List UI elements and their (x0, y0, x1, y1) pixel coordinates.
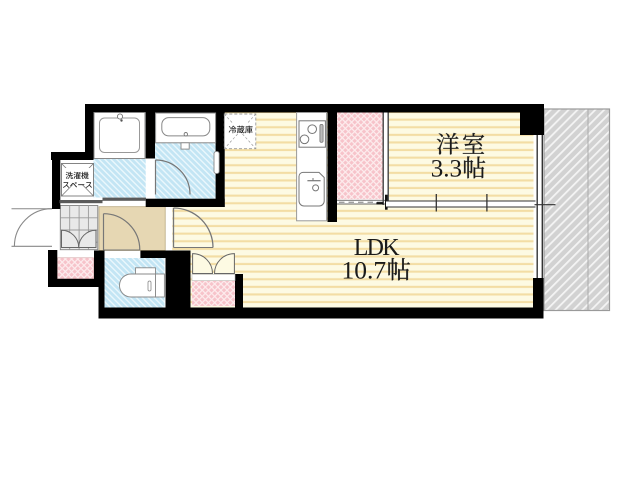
svg-text:3.3: 3.3 (431, 155, 462, 182)
svg-text:10.7: 10.7 (342, 256, 387, 285)
